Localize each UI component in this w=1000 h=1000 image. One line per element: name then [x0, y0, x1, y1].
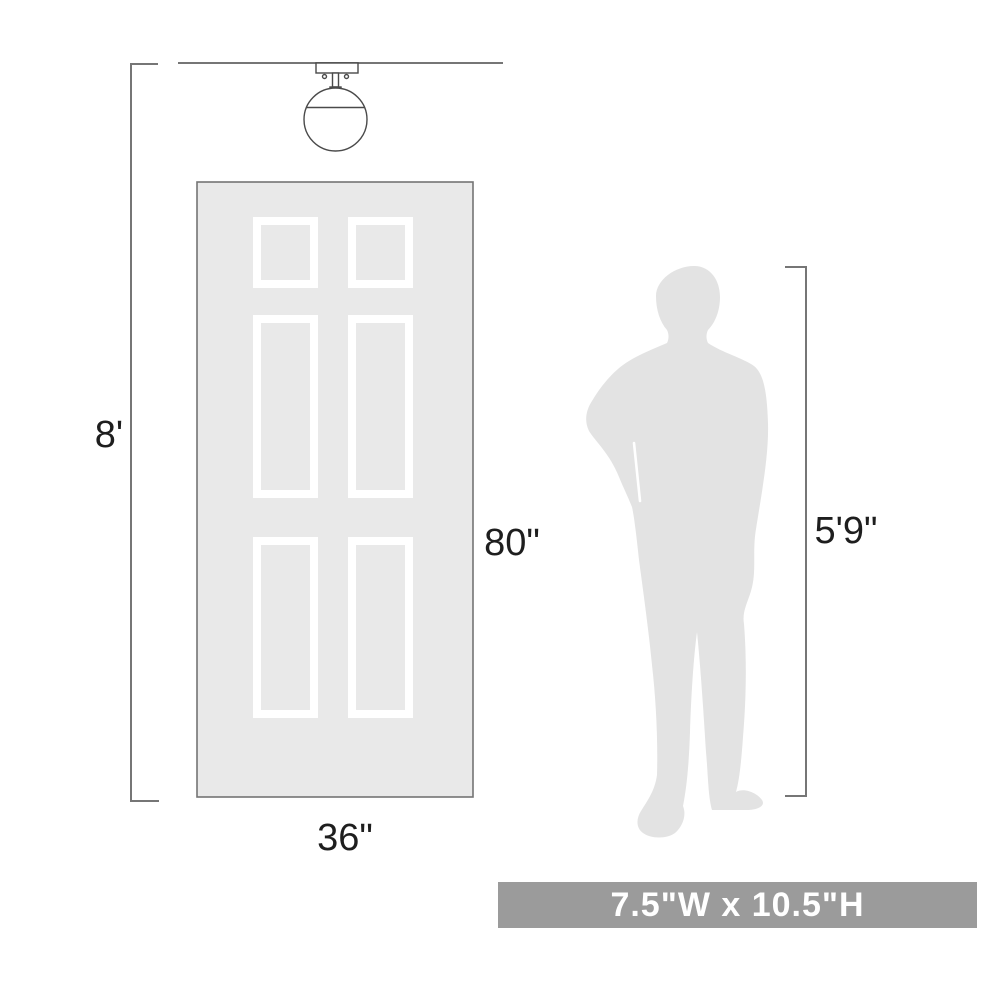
door-panel-inner [261, 225, 310, 280]
fixture-size-text: 7.5"W x 10.5"H [610, 886, 864, 925]
fixture-size-banner: 7.5"W x 10.5"H [498, 882, 977, 928]
ceiling-height-label: 8' [95, 414, 123, 456]
diagram-canvas: 8' [0, 0, 1000, 1000]
door-panel-inner [261, 323, 310, 490]
door-panel-inner [356, 323, 405, 490]
door-panel-inner [356, 225, 405, 280]
door-panel-inner [261, 545, 310, 710]
door-panel-inner [356, 545, 405, 710]
person-height-label: 5'9" [814, 510, 877, 552]
door-width-label: 36" [317, 817, 373, 859]
ceiling-height-dimension-line [131, 64, 159, 801]
door-illustration [197, 182, 473, 797]
fixture-stem [333, 73, 339, 87]
fixture-canopy [316, 63, 358, 73]
ceiling-light-fixture-icon [304, 63, 367, 151]
human-silhouette-shape [586, 266, 768, 838]
fixture-screw-icon [345, 75, 349, 79]
door-height-label: 80" [484, 522, 540, 564]
product-dimension-diagram: 8' [0, 0, 1000, 1000]
fixture-globe [304, 88, 367, 151]
door-slab [197, 182, 473, 797]
person-height-dimension-line [785, 267, 806, 796]
fixture-screw-icon [323, 75, 327, 79]
human-silhouette [586, 266, 768, 838]
